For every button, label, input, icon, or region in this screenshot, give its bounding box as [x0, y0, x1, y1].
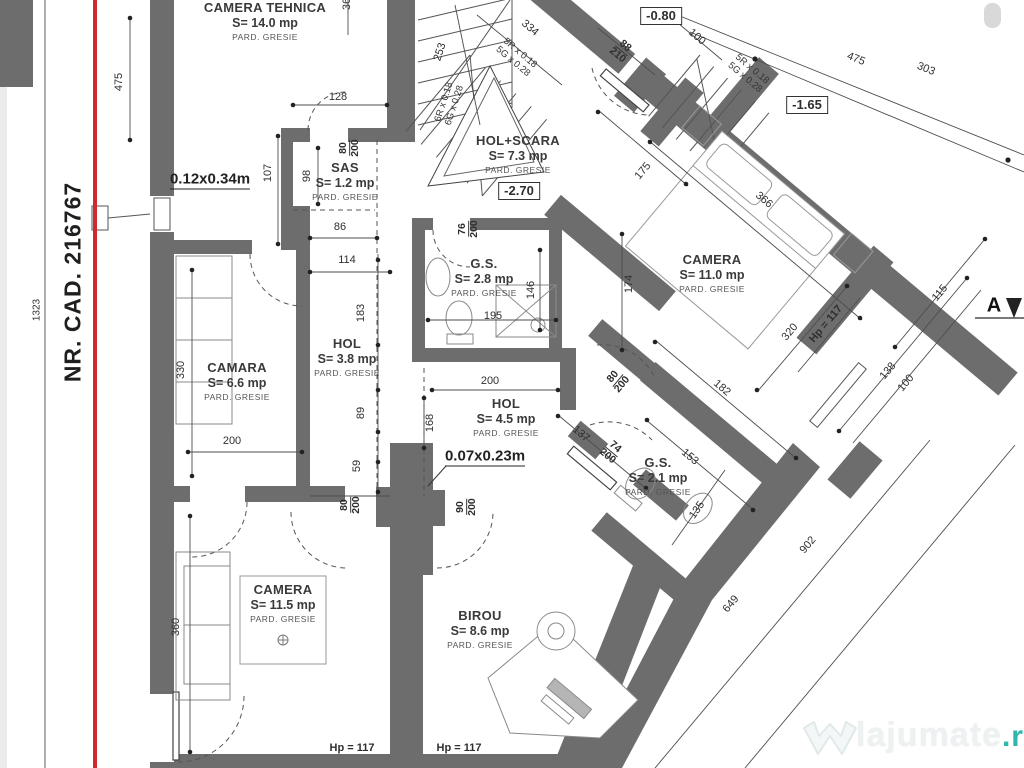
hp-birou: Hp = 117 — [437, 742, 482, 754]
dim-195: 195 — [484, 310, 502, 322]
dim-475: 475 — [113, 73, 125, 91]
wall-gs28-bottom — [412, 348, 562, 362]
dim-door-76-200: 76200 — [457, 220, 481, 238]
dim-168: 168 — [424, 414, 436, 432]
dim-128: 128 — [329, 91, 347, 103]
level-marker-165: -1.65 — [786, 96, 828, 114]
floor-plan-canvas: CAMERA TEHNICA S= 14.0 mp PARD. GRESIE S… — [0, 0, 1024, 768]
watermark-name: lajumate — [856, 716, 1002, 755]
dim-330: 330 — [175, 361, 187, 379]
door-arc-hol-cam115 — [437, 512, 493, 568]
dim-door-80-200-sas: 80200 — [338, 139, 362, 157]
level-marker-270: -2.70 — [498, 182, 540, 200]
cadastral-number: NR. CAD. 216767 — [60, 182, 87, 382]
wall-corner-right — [827, 441, 882, 499]
wall-sas-left — [281, 128, 293, 218]
dim-360: 360 — [170, 618, 182, 636]
wall-cross-right-arm — [433, 490, 445, 526]
wall-gs28-link — [560, 348, 576, 410]
door-arc-cross-left — [291, 512, 347, 568]
room-label-camara: CAMARA S= 6.6 mp PARD. GRESIE — [204, 360, 270, 403]
dim-200-hol: 200 — [481, 375, 499, 387]
wall-cam115-top-b — [245, 486, 345, 502]
room-label-camera115: CAMERA S= 11.5 mp PARD. GRESIE — [250, 582, 316, 625]
section-a-triangle — [1006, 298, 1022, 318]
dim-36: 36 — [341, 0, 353, 10]
room-label-gs21: G.S. S= 2.1 mp PARD. GRESIE — [625, 455, 691, 498]
wall-gs28-top-a — [412, 218, 433, 230]
wall-left-low — [150, 762, 174, 768]
wall-camara-top — [150, 240, 252, 254]
level-marker-080: -0.80 — [640, 7, 682, 25]
room-label-birou: BIROU S= 8.6 mp PARD. GRESIE — [447, 608, 513, 651]
dim-59: 59 — [351, 460, 363, 472]
sofa-camera115 — [176, 552, 230, 700]
room-label-camera11: CAMERA S= 11.0 mp PARD. GRESIE — [679, 252, 745, 295]
window-left — [154, 198, 170, 230]
wall-corner-block — [0, 0, 33, 87]
room-label-sas: SAS S= 1.2 mp PARD. GRESIE — [312, 160, 378, 203]
wall-sas-top-a — [293, 128, 310, 142]
dim-door-90-200: 90200 — [455, 498, 479, 516]
room-label-hol45: HOL S= 4.5 mp PARD. GRESIE — [473, 396, 539, 439]
dim-200-camara: 200 — [223, 435, 241, 447]
wall-gs28-top-b — [470, 218, 562, 230]
scrollbar-thumb[interactable] — [984, 3, 1001, 28]
room-label-hol38: HOL S= 3.8 mp PARD. GRESIE — [314, 336, 380, 379]
window-note-small: 0.12x0.34m — [170, 171, 250, 190]
dim-1323: 1323 — [32, 299, 43, 321]
wall-left-upper — [150, 0, 174, 196]
window-right — [810, 363, 867, 428]
dim-89: 89 — [355, 407, 367, 419]
wall-cross-vert — [390, 443, 433, 575]
window-note-tiny: 0.07x0.23m — [445, 448, 525, 467]
dim-door-80-200-cross: 80200 — [339, 496, 363, 514]
wall-camara-right — [296, 254, 310, 498]
wall-mid-vert — [390, 573, 423, 768]
floor-plan-drawing — [0, 0, 1024, 768]
watermark: lajumate.ro — [856, 716, 1024, 755]
door-arc-camara — [250, 254, 302, 306]
wall-camara-stub — [296, 240, 310, 254]
wall-gs28-left — [412, 230, 425, 350]
wall-cam115-top-a — [150, 486, 190, 502]
dim-98: 98 — [301, 170, 313, 182]
symbol-marker — [278, 635, 288, 645]
room-label-hol-scara: HOL+SCARA S= 7.3 mp PARD. GRESIE — [476, 133, 560, 176]
watermark-tld: .ro — [1002, 720, 1024, 754]
door-leaf-bottomleft — [173, 692, 179, 760]
dim-146: 146 — [525, 281, 537, 299]
wall-stair-left — [387, 0, 415, 142]
dim-107: 107 — [262, 164, 274, 182]
dim-114: 114 — [338, 254, 356, 266]
room-label-gs28: G.S. S= 2.8 mp PARD. GRESIE — [451, 256, 517, 299]
room-label-camera-tehnica: CAMERA TEHNICA S= 14.0 mp PARD. GRESIE — [204, 0, 326, 43]
wall-bottom-birou — [423, 754, 563, 768]
door-arc-cam115-top — [192, 502, 247, 557]
dim-86: 86 — [334, 221, 346, 233]
dim-174: 174 — [623, 275, 635, 293]
hp-camera115: Hp = 117 — [330, 742, 375, 754]
section-marker-a: A — [987, 295, 1001, 318]
dim-183: 183 — [355, 304, 367, 322]
lajumate-logo — [804, 722, 856, 754]
window-note-pointer — [108, 214, 150, 218]
